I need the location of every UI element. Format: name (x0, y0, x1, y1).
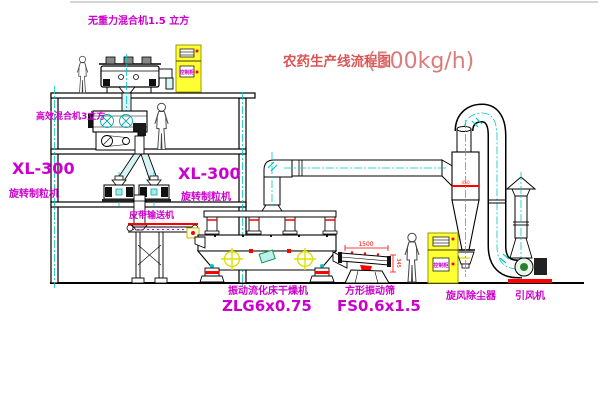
label-sieve-model: FS0.6x1.5 (337, 297, 421, 315)
title-capacity: (500kg/h) (367, 49, 474, 74)
cabinet-bottom-label: 控制柜 (433, 262, 448, 269)
belt-conveyor (127, 224, 199, 283)
label-mixer-mid: 高效混合机3立方 (36, 110, 105, 122)
label-mixer-top: 无重力混合机1.5 立方 (87, 14, 189, 27)
label-granulator-mid-model: XL-300 (178, 164, 241, 183)
indicator-light-icon (452, 263, 455, 266)
operator-figure-floor2 (155, 103, 168, 149)
control-cabinet-top: 控制柜 (176, 45, 201, 92)
dryer-inlet (195, 237, 205, 248)
fan-motor (534, 258, 547, 275)
square-vibrating-sieve: 1500 345 (338, 241, 401, 283)
operator-figure-top (77, 56, 88, 93)
label-fan: 引风机 (515, 289, 545, 302)
label-dryer-name: 振动流化床干燥机 (228, 284, 308, 297)
drawing-title: 农药生产线流程图 (500kg/h) (282, 49, 474, 74)
sieve-length-dim: 1500 (358, 241, 373, 248)
roof-beam (51, 93, 255, 98)
control-cabinet-bottom: 控制柜 (428, 233, 458, 283)
label-cyclone: 旋风除尘器 (445, 289, 497, 302)
flow-diagram-canvas: 控制柜 (0, 0, 600, 403)
label-granulator-left-name: 旋转制粒机 (8, 187, 59, 200)
label-sieve-name: 方形振动筛 (345, 284, 395, 297)
label-belt-conveyor: 皮带输送机 (128, 209, 174, 221)
mixer-feed-ports (106, 57, 151, 64)
cabinet-top-label: 控制柜 (179, 69, 194, 76)
operator-figure-sieve (405, 233, 419, 282)
floor2-beam (51, 149, 246, 154)
indicator-light-icon (196, 50, 199, 53)
granulator-left (102, 172, 136, 206)
indicator-light-icon (452, 238, 455, 241)
dryer-risers (205, 217, 337, 234)
sieve-height-dim: 345 (395, 258, 401, 268)
dryer-exhaust-duct (262, 152, 456, 211)
process-flow-drawing: 控制柜 (0, 0, 600, 403)
fluid-bed-dryer (195, 211, 347, 282)
label-dryer-model: ZLG6x0.75 (222, 297, 312, 315)
label-granulator-mid-name: 旋转制粒机 (180, 190, 231, 203)
label-granulator-left-model: XL-300 (12, 159, 75, 178)
indicator-light-icon (196, 71, 199, 74)
